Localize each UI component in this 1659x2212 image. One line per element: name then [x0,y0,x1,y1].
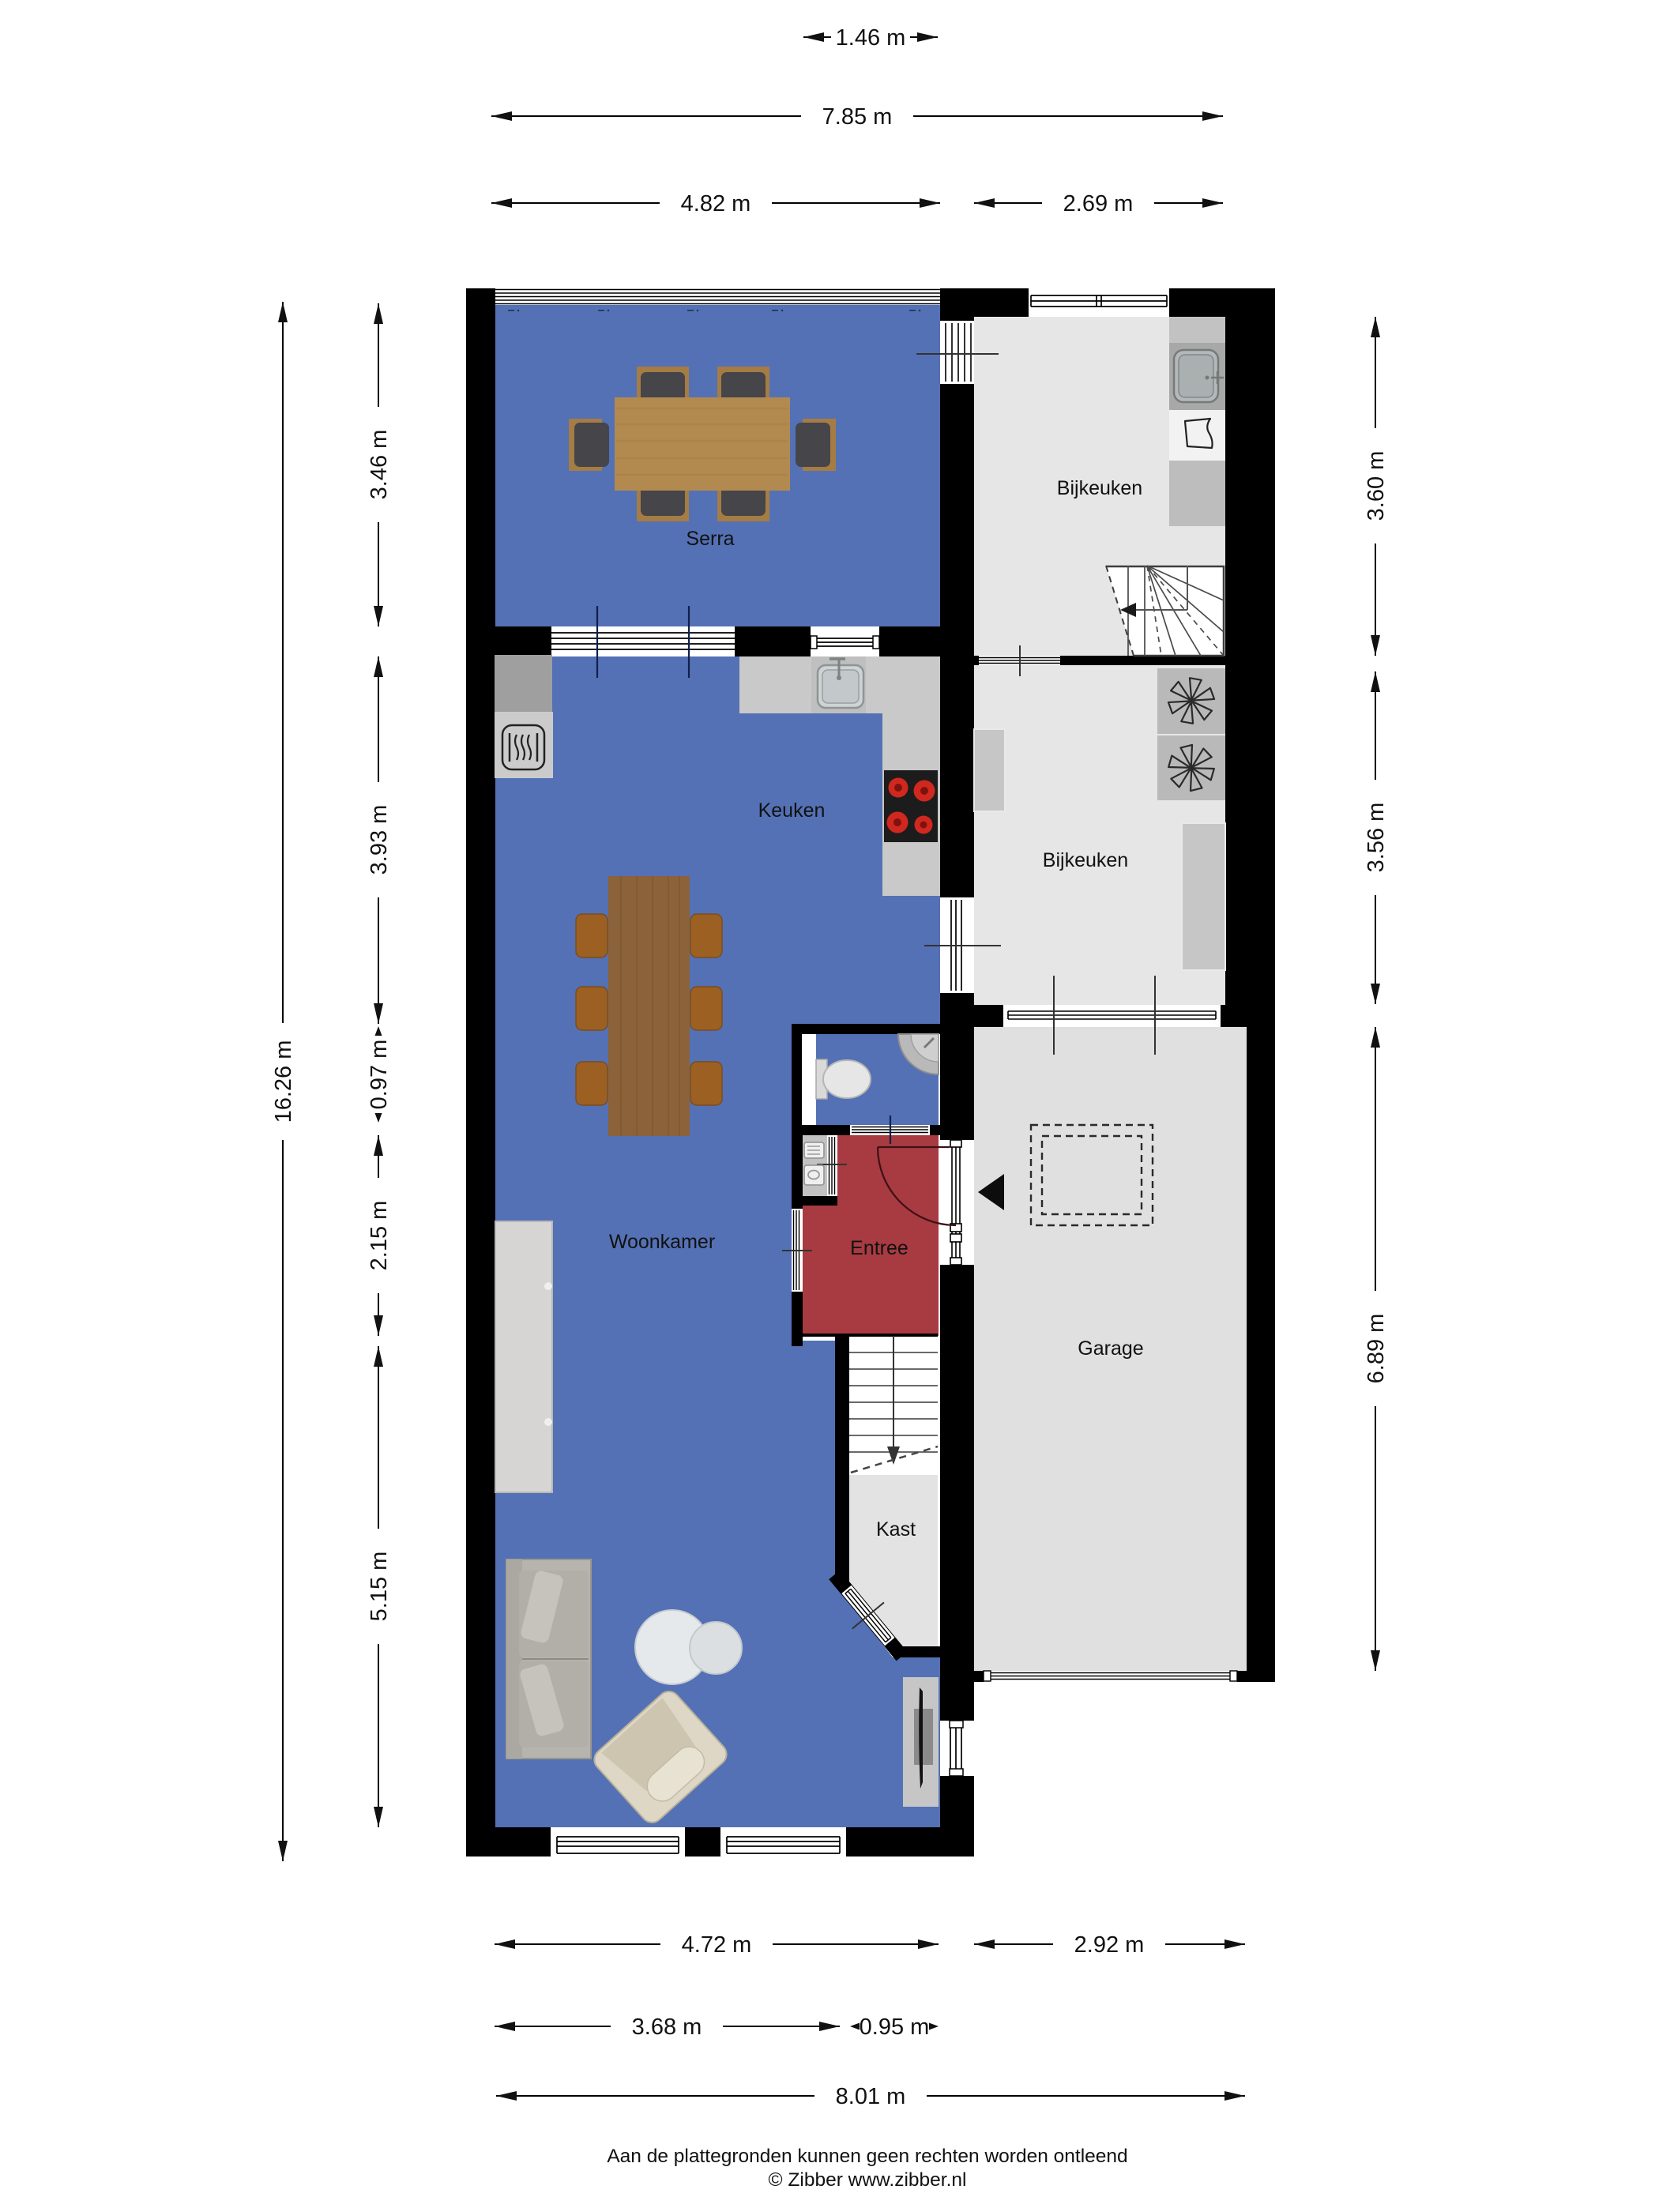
svg-text:4.72 m: 4.72 m [682,1932,752,1958]
svg-text:0.95 m: 0.95 m [860,2014,930,2040]
svg-text:Bijkeuken: Bijkeuken [1043,849,1128,871]
svg-text:16.26 m: 16.26 m [271,1040,296,1123]
svg-text:6.89 m: 6.89 m [1364,1314,1389,1384]
svg-text:© Zibber www.zibber.nl: © Zibber www.zibber.nl [769,2169,967,2191]
svg-text:Entree: Entree [850,1237,908,1259]
svg-text:2.15 m: 2.15 m [367,1201,392,1271]
svg-text:3.68 m: 3.68 m [632,2014,702,2040]
svg-text:Serra: Serra [686,528,734,550]
svg-text:3.60 m: 3.60 m [1364,451,1389,521]
svg-text:3.93 m: 3.93 m [367,805,392,875]
svg-text:3.46 m: 3.46 m [367,430,392,500]
svg-text:8.01 m: 8.01 m [836,2084,906,2109]
svg-text:Keuken: Keuken [758,799,826,822]
svg-text:5.15 m: 5.15 m [367,1552,392,1622]
svg-text:Aan de plattegronden kunnen ge: Aan de plattegronden kunnen geen rechten… [607,2146,1127,2167]
svg-text:2.92 m: 2.92 m [1074,1932,1145,1958]
svg-text:3.56 m: 3.56 m [1364,803,1389,873]
svg-text:0.97 m: 0.97 m [367,1040,392,1110]
svg-text:Woonkamer: Woonkamer [609,1231,715,1253]
svg-text:1.46 m: 1.46 m [836,25,906,51]
svg-text:Garage: Garage [1078,1337,1143,1360]
svg-text:Kast: Kast [876,1518,916,1540]
svg-text:Bijkeuken: Bijkeuken [1057,477,1142,499]
svg-text:7.85 m: 7.85 m [822,104,893,130]
svg-text:2.69 m: 2.69 m [1063,191,1134,216]
svg-text:4.82 m: 4.82 m [681,191,751,216]
